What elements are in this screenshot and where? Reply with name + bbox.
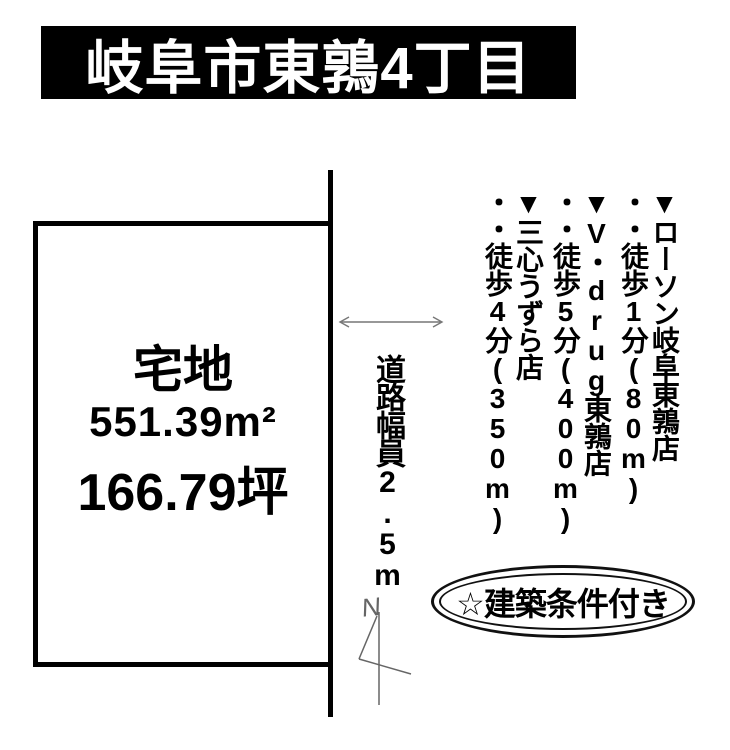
leader-dots: ・・: [550, 188, 581, 242]
leader-dots: ・・: [482, 188, 513, 242]
facility-name-text: ローソン岐阜東鶉店: [649, 218, 680, 461]
property-flyer: { "title": "岐阜市東鶉4丁目", "plot": { "land_t…: [0, 0, 730, 750]
title-banner: 岐阜市東鶉4丁目: [41, 26, 576, 99]
triangle-marker-icon: ▼: [649, 188, 680, 218]
badge-label: ☆建築条件付き: [456, 579, 670, 625]
facility-name-text: V・drug東鶉店: [581, 218, 612, 476]
triangle-marker-icon: ▼: [513, 188, 544, 218]
page-title: 岐阜市東鶉4丁目: [85, 21, 531, 105]
facility-distance: ・・徒歩1分(80m): [618, 188, 649, 518]
area-tsubo-label: 166.79坪: [33, 450, 333, 525]
facility-distance: ・・徒歩5分(400m): [550, 188, 581, 518]
facility-name-text: 三心うずら店: [513, 218, 544, 380]
facility-walk-text: 徒歩5分(400m): [550, 242, 581, 533]
facility-walk-text: 徒歩4分(350m): [482, 242, 513, 533]
facility-name: ▼三心うずら店: [513, 188, 544, 518]
facility-list: ▼ローソン岐阜東鶉店 ・・徒歩1分(80m) ▼V・drug東鶉店 ・・徒歩5分…: [482, 188, 680, 518]
facility-name: ▼ローソン岐阜東鶉店: [649, 188, 680, 518]
road-width-arrow-icon: [336, 314, 446, 330]
badge-inner-ring: ☆建築条件付き: [439, 573, 687, 630]
facility-distance: ・・徒歩4分(350m): [482, 188, 513, 518]
road-line: [328, 170, 333, 717]
north-arrow-icon: [350, 590, 420, 710]
building-condition-badge: ☆建築条件付き: [431, 565, 695, 638]
area-sqm-label: 551.39m²: [33, 398, 333, 446]
land-type-label: 宅地: [33, 330, 333, 402]
facility-name: ▼V・drug東鶉店: [581, 188, 612, 518]
road-width-label: 道路幅員2.5m: [370, 354, 404, 590]
triangle-marker-icon: ▼: [581, 188, 612, 218]
leader-dots: ・・: [618, 188, 649, 242]
facility-walk-text: 徒歩1分(80m): [618, 242, 649, 503]
